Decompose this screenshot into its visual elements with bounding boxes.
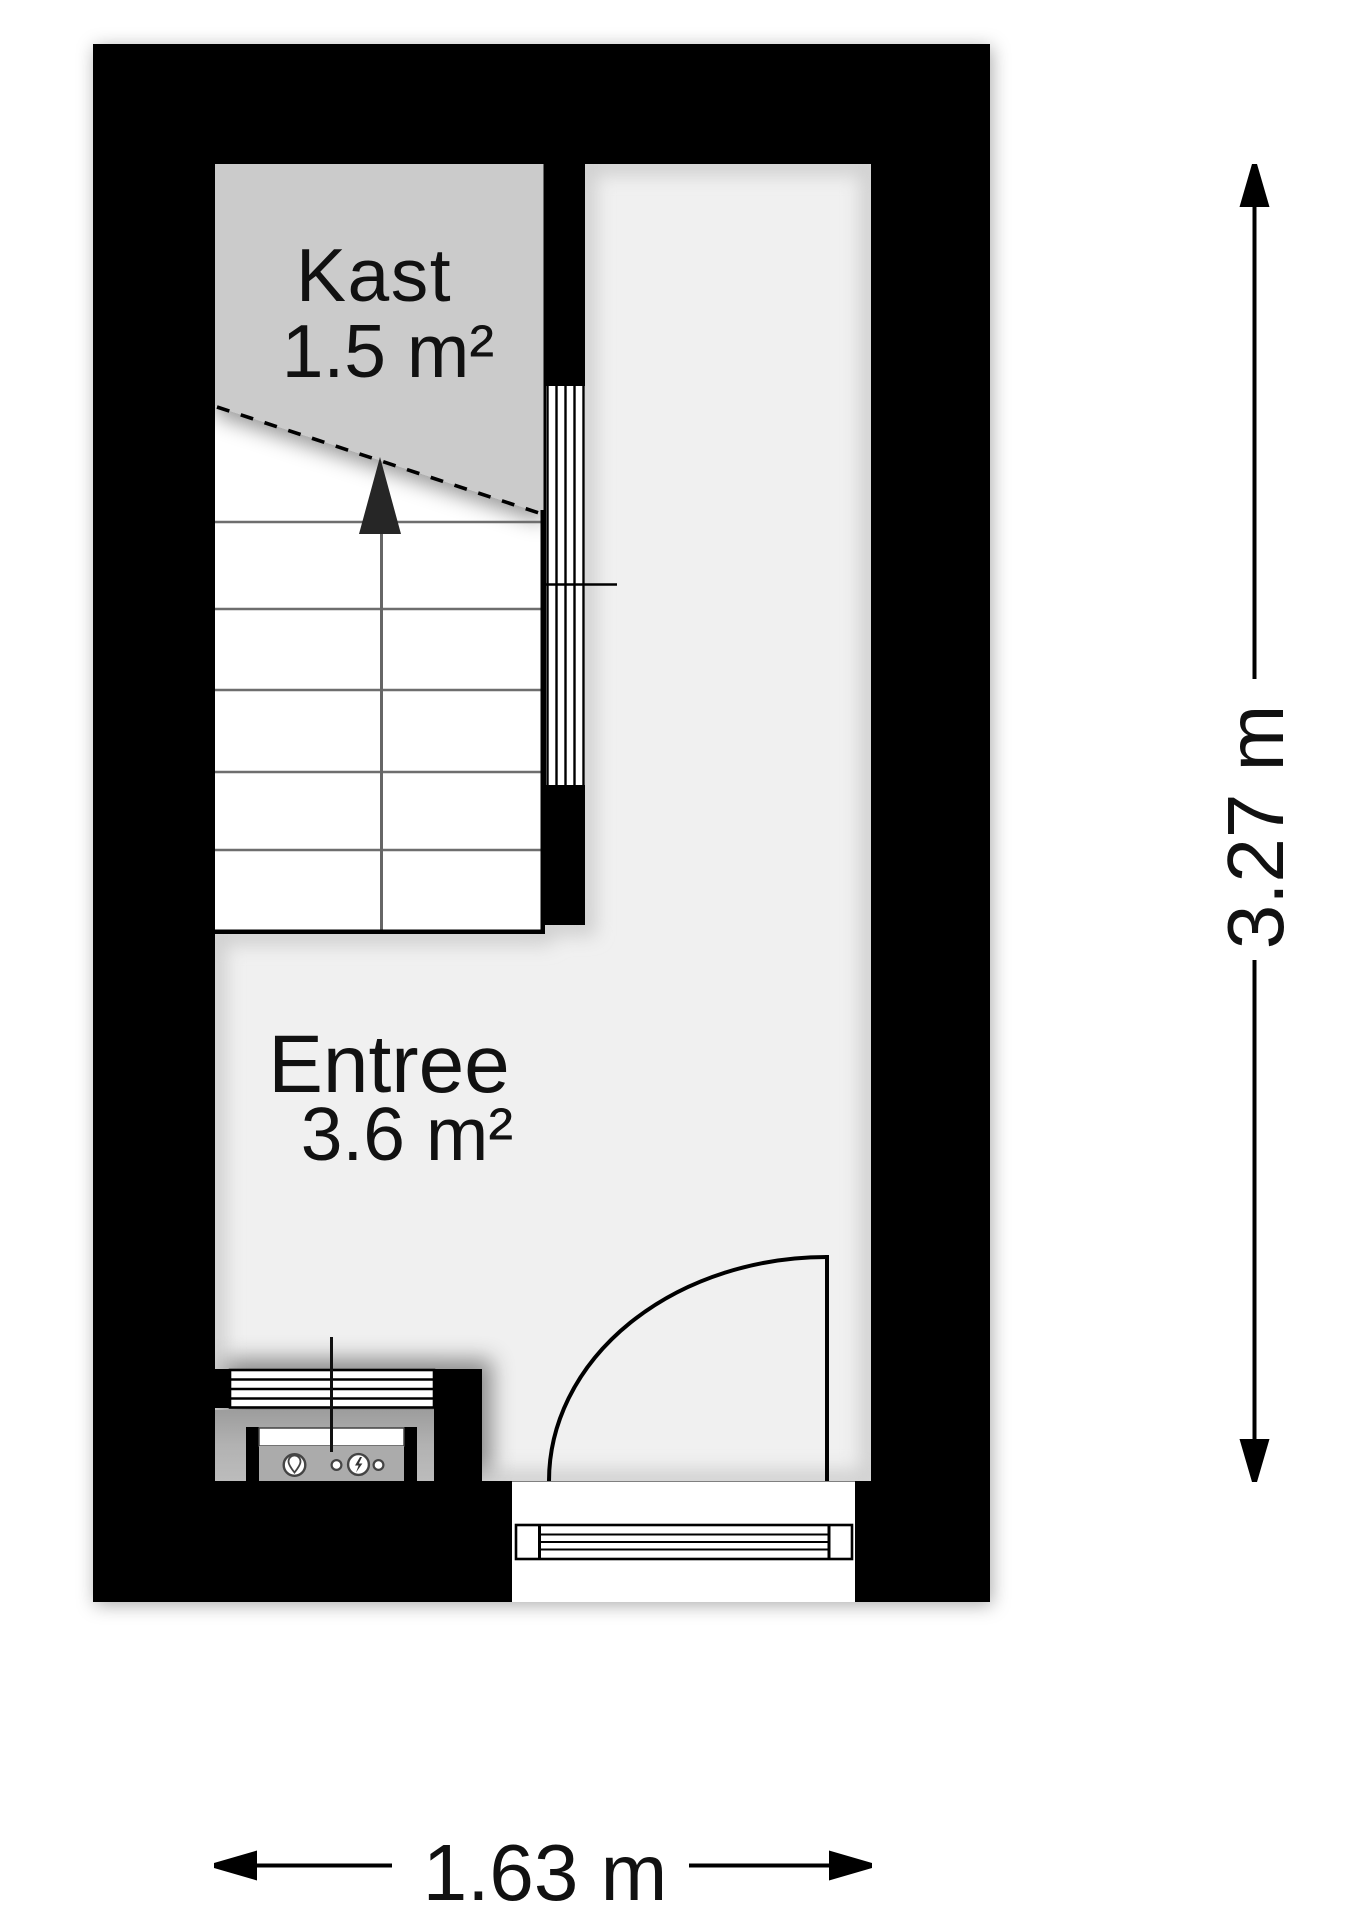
svg-text:1.63 m: 1.63 m	[423, 1828, 668, 1917]
svg-text:3.27 m: 3.27 m	[1211, 705, 1300, 950]
svg-text:3.6 m²: 3.6 m²	[301, 1092, 514, 1176]
svg-text:Kast: Kast	[296, 233, 452, 317]
svg-text:1.5 m²: 1.5 m²	[282, 309, 495, 393]
